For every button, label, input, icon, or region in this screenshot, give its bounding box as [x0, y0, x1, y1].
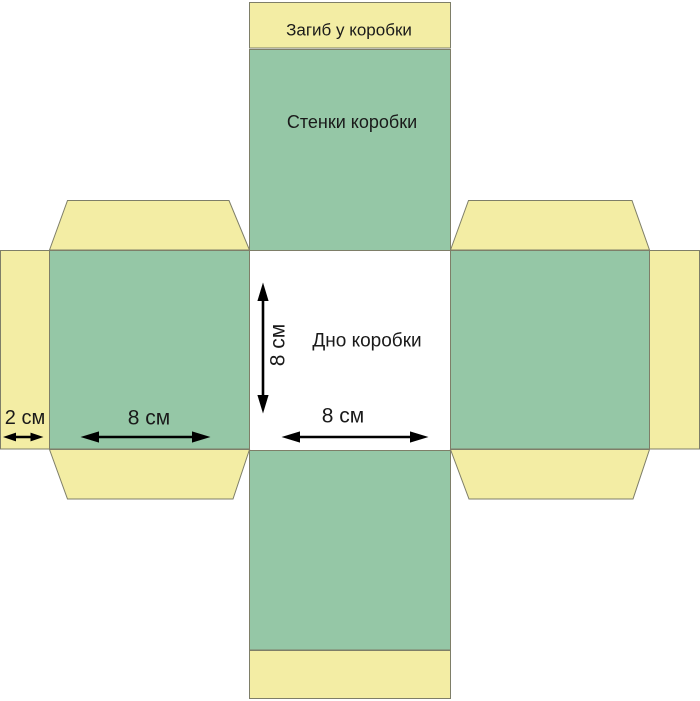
top-wall-panel: [250, 50, 451, 251]
left-dimension-label: 8 см: [128, 408, 170, 429]
left-top-tuck-flap: [50, 201, 250, 251]
horizontal-dimension-label: 8 см: [322, 406, 364, 427]
bottom-wall-panel: [250, 451, 451, 651]
right-glue-strip: [650, 251, 700, 450]
vertical-dimension-label: 8 см: [268, 324, 289, 366]
top-flap-label: Загиб у коробки: [286, 22, 412, 39]
left-bottom-tuck-flap: [50, 450, 250, 500]
box-net-diagram: Загиб у коробки Стенки коробки Дно короб…: [0, 0, 700, 701]
right-wall-panel: [451, 251, 650, 450]
right-bottom-tuck-flap: [451, 450, 650, 500]
flap-dimension-label: 2 см: [5, 408, 45, 428]
right-top-tuck-flap: [451, 201, 650, 251]
bottom-glue-flap-panel: [250, 651, 451, 699]
walls-label: Стенки коробки: [287, 113, 417, 131]
bottom-panel-label: Дно коробки: [312, 332, 421, 351]
